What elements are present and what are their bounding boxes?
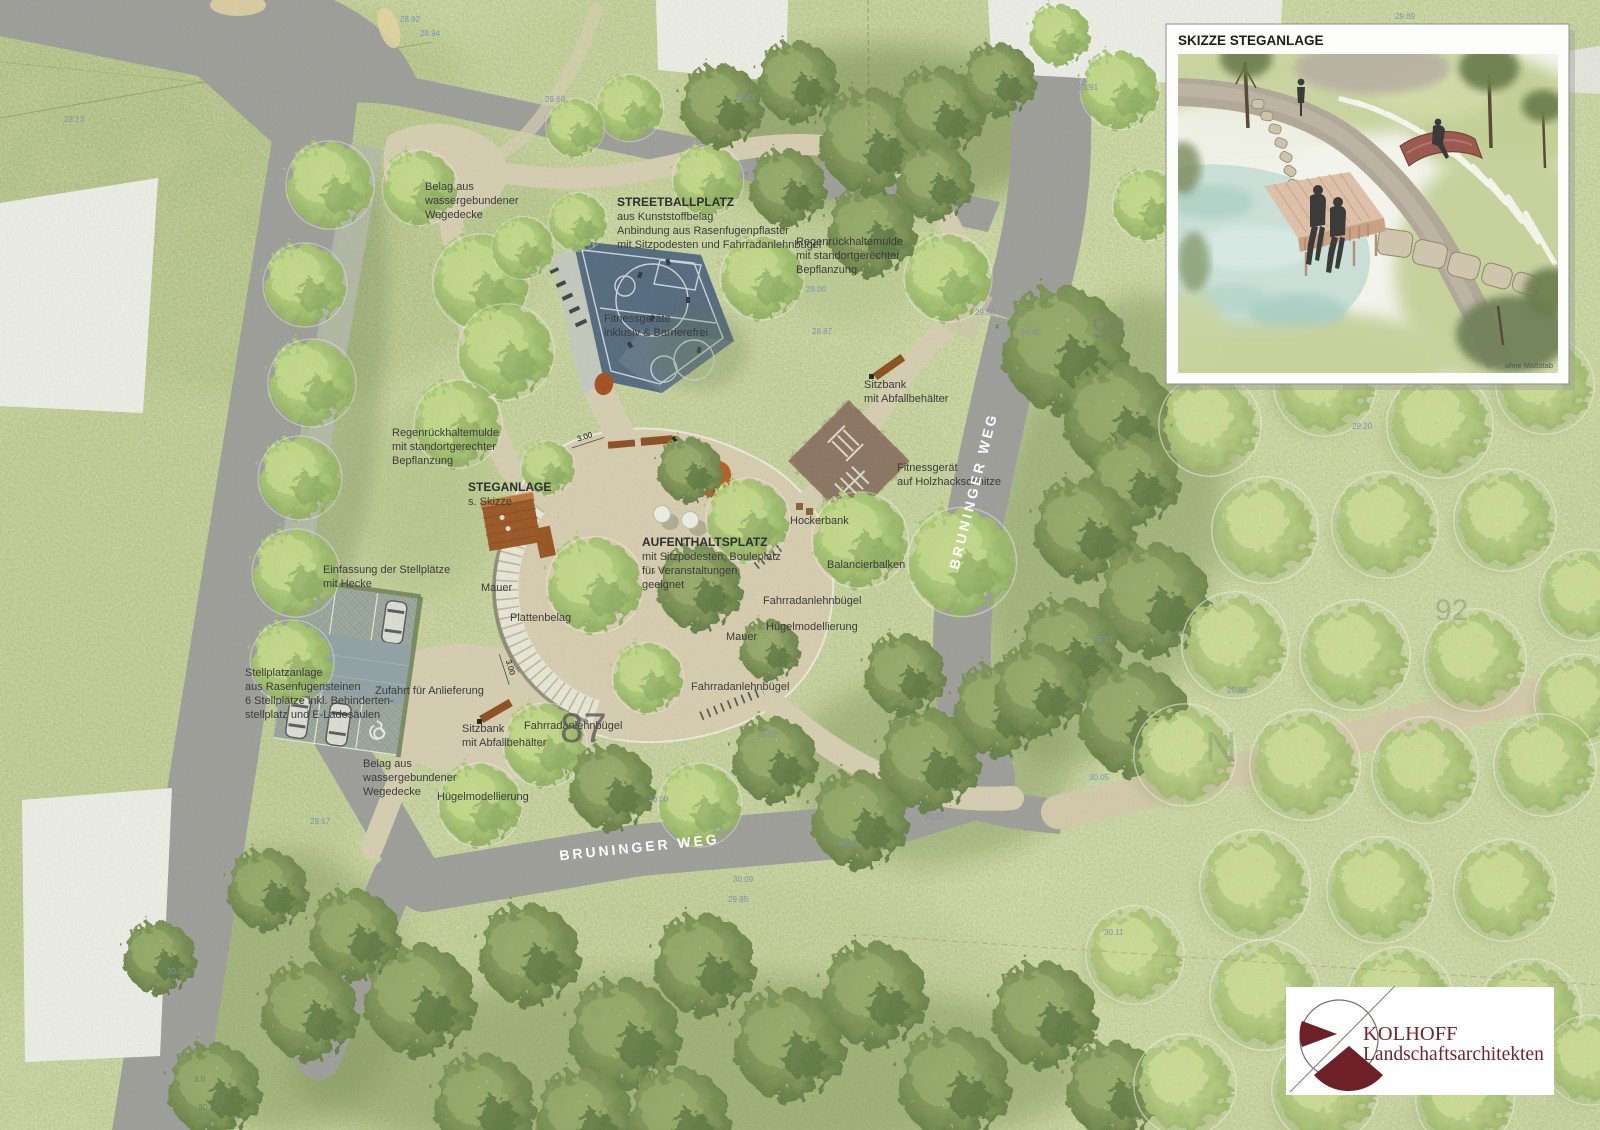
svg-text:Sitzbank: Sitzbank — [462, 723, 505, 735]
svg-text:29.89: 29.89 — [1395, 12, 1416, 21]
svg-text:29.60: 29.60 — [545, 95, 566, 104]
svg-text:Wegedecke: Wegedecke — [363, 786, 421, 798]
svg-text:für Veranstaltungen,: für Veranstaltungen, — [642, 565, 740, 577]
svg-text:Fahrradanlehnbügel: Fahrradanlehnbügel — [691, 681, 789, 693]
svg-text:30.09: 30.09 — [733, 875, 754, 884]
svg-text:87: 87 — [560, 704, 607, 751]
svg-text:mit Sitzpodesten und Fahrradan: mit Sitzpodesten und Fahrradanlehnbügel — [617, 239, 821, 251]
svg-text:Anbindung aus Rasenfugenpflast: Anbindung aus Rasenfugenpflaster — [617, 225, 789, 237]
svg-text:geeignet: geeignet — [642, 579, 684, 591]
svg-text:30.05: 30.05 — [1089, 773, 1110, 782]
svg-text:stellplatz und E-Ladesäulen: stellplatz und E-Ladesäulen — [245, 709, 380, 721]
svg-text:auf Holzhackschnitze: auf Holzhackschnitze — [897, 476, 1001, 488]
svg-text:30.01: 30.01 — [167, 967, 188, 976]
svg-text:AUFENTHALTSPLATZ: AUFENTHALTSPLATZ — [642, 535, 768, 549]
svg-text:mit standortgerechter: mit standortgerechter — [392, 441, 496, 453]
svg-text:STEGANLAGE: STEGANLAGE — [468, 480, 551, 494]
svg-text:wassergebundener: wassergebundener — [424, 195, 519, 207]
svg-text:6 Stellplätze inkl. Behinderte: 6 Stellplätze inkl. Behinderten- — [245, 695, 394, 707]
svg-text:29.89: 29.89 — [1227, 686, 1248, 695]
svg-text:3.0: 3.0 — [194, 1075, 206, 1084]
svg-text:28.94: 28.94 — [420, 29, 441, 38]
svg-text:29.67: 29.67 — [310, 817, 331, 826]
svg-text:28.91: 28.91 — [1078, 83, 1099, 92]
svg-text:ohne Maßstab: ohne Maßstab — [1505, 361, 1553, 370]
svg-text:SKIZZE STEGANLAGE: SKIZZE STEGANLAGE — [1178, 33, 1324, 48]
svg-text:Belag aus: Belag aus — [363, 758, 412, 770]
svg-text:29.20: 29.20 — [1352, 422, 1373, 431]
svg-text:Zufahrt für Anlieferung: Zufahrt für Anlieferung — [375, 685, 484, 697]
svg-text:Mauer: Mauer — [726, 631, 758, 643]
svg-text:Wegedecke: Wegedecke — [425, 209, 483, 221]
svg-text:30.17: 30.17 — [198, 1103, 219, 1112]
svg-text:Landschaftsarchitekten: Landschaftsarchitekten — [1363, 1044, 1544, 1065]
svg-text:30.22: 30.22 — [924, 812, 945, 821]
svg-text:s. Skizze: s. Skizze — [468, 496, 512, 508]
svg-text:Mauer: Mauer — [481, 582, 513, 594]
svg-text:Fahrradanlehnbügel: Fahrradanlehnbügel — [763, 595, 861, 607]
svg-text:92: 92 — [1092, 312, 1125, 345]
svg-text:inklusiv & Barrierefrei: inklusiv & Barrierefrei — [604, 327, 708, 339]
svg-text:92: 92 — [1435, 594, 1468, 627]
svg-text:Regenrückhaltemulde: Regenrückhaltemulde — [796, 236, 903, 248]
svg-text:28.80: 28.80 — [1021, 328, 1042, 337]
svg-text:KOLHOFF: KOLHOFF — [1363, 1023, 1458, 1045]
svg-text:Belag aus: Belag aus — [425, 181, 474, 193]
svg-text:3.0: 3.0 — [194, 1043, 206, 1052]
svg-text:mit Abfallbehälter: mit Abfallbehälter — [864, 393, 949, 405]
svg-text:Einfassung der Stellplätze: Einfassung der Stellplätze — [323, 564, 450, 576]
svg-text:mit standortgerechter: mit standortgerechter — [796, 250, 900, 262]
svg-text:28.13: 28.13 — [64, 115, 85, 124]
svg-text:Plattenbelag: Plattenbelag — [510, 612, 571, 624]
svg-text:30.11: 30.11 — [1104, 928, 1124, 937]
svg-text:Fitnessgerät: Fitnessgerät — [897, 462, 958, 474]
svg-text:mit Sitzpodesten, Bouleplatz: mit Sitzpodesten, Bouleplatz — [642, 551, 781, 563]
svg-text:30.00: 30.00 — [648, 795, 669, 804]
svg-text:Fitnessgeräte: Fitnessgeräte — [604, 313, 671, 325]
svg-text:Hügelmodellierung: Hügelmodellierung — [437, 791, 529, 803]
svg-text:STREETBALLPLATZ: STREETBALLPLATZ — [617, 195, 734, 209]
svg-text:29.00: 29.00 — [806, 285, 827, 294]
svg-text:Hügelmodellierung: Hügelmodellierung — [766, 621, 858, 633]
svg-text:aus Rasenfugensteinen: aus Rasenfugensteinen — [245, 681, 361, 693]
svg-text:N: N — [1205, 723, 1237, 772]
svg-text:29.82: 29.82 — [757, 730, 778, 739]
svg-text:wassergebundener: wassergebundener — [362, 772, 457, 784]
svg-text:mit Hecke: mit Hecke — [323, 578, 372, 590]
svg-text:aus Kunststoffbelag: aus Kunststoffbelag — [617, 211, 713, 223]
svg-text:Regenrückhaltemulde: Regenrückhaltemulde — [392, 427, 499, 439]
svg-text:Sitzbank: Sitzbank — [864, 379, 907, 391]
svg-text:29.50: 29.50 — [975, 308, 996, 317]
svg-text:mit Abfallbehälter: mit Abfallbehälter — [462, 737, 547, 749]
svg-text:29.71: 29.71 — [1093, 635, 1114, 644]
svg-text:Balancierbalken: Balancierbalken — [827, 559, 905, 571]
svg-text:30.02: 30.02 — [838, 840, 859, 849]
svg-text:29.43: 29.43 — [735, 93, 756, 102]
svg-text:Bepflanzung: Bepflanzung — [392, 455, 453, 467]
svg-text:28.92: 28.92 — [400, 15, 421, 24]
svg-text:Hockerbank: Hockerbank — [790, 515, 849, 527]
svg-text:29.95: 29.95 — [728, 895, 749, 904]
svg-text:Bepflanzung: Bepflanzung — [796, 264, 857, 276]
svg-text:28.87: 28.87 — [812, 327, 833, 336]
svg-text:Stellplatzanlage: Stellplatzanlage — [245, 667, 323, 679]
